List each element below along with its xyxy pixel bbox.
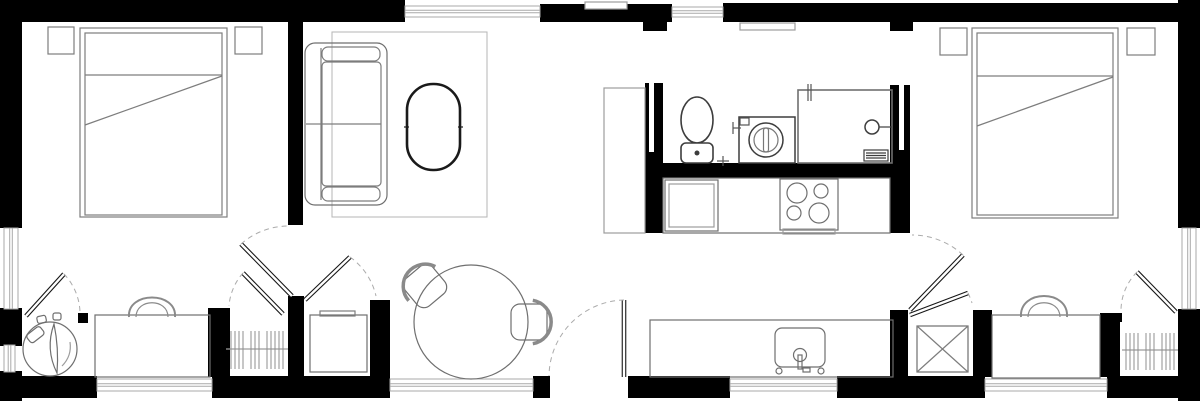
bottom-wall-2 [212,376,390,398]
pocket-door-left [649,78,654,152]
top-window-living [405,6,540,17]
closet-b2-jamb [1114,313,1122,322]
closet-b2-door-leaf-face [1137,272,1176,312]
bed-mattress [85,33,222,215]
bottom-window-desk1 [97,379,212,391]
windows [4,6,1196,391]
exterior-walls [0,0,1200,401]
burner [809,203,829,223]
bed-blanket-fold [85,76,222,125]
dining-furniture [400,261,552,379]
doors [26,226,1176,377]
left-window-upper [4,228,18,309]
top-window-bath [672,7,723,17]
left-window-small [4,345,15,372]
left-wall-mid [0,308,22,346]
bath-shelf [740,23,795,30]
washer-drum-inner [754,128,778,152]
bath-kitchen-wall [645,163,910,178]
right-window [1182,228,1196,309]
roof-vent [585,2,627,9]
closet-b2-door-swing [1121,272,1137,310]
bottom-wall-6 [1107,376,1200,398]
sink-counter [650,320,893,377]
shower-head [865,120,879,134]
tall-cabinet [604,88,645,233]
dining-chair-seat [511,304,547,340]
nook-furniture [23,313,77,376]
bed-frame [972,28,1118,218]
round-chair-knob [53,313,61,320]
floor-plan-canvas [0,0,1200,401]
desk2-post-left [973,310,992,377]
washer-drum-slot [764,128,769,152]
desk-right [992,315,1100,378]
sink-handle [776,368,782,374]
round-chair-armrest [26,326,46,344]
bedroom2-door-leaf-face [910,255,963,310]
bed-blanket-fold [977,77,1113,126]
nook-door-swing [64,274,80,312]
bedroom-1-furniture [48,27,262,217]
closet-left-post [208,308,230,377]
bath-stub-left [643,22,667,31]
burner [814,184,828,198]
sofa-arm [322,187,380,201]
closet-right-door-swing [350,257,376,296]
nook-jamb [78,313,88,323]
bedroom1-door-leaf-face [241,244,292,296]
bottom-wall-3 [533,376,550,398]
floor-plan-page [0,0,1200,401]
bathroom-fixtures [585,2,892,233]
desk-left [95,315,210,377]
sofa-arm [322,47,380,61]
nightstand [940,28,967,55]
nightstand [235,27,262,54]
right-wall-upper [1178,0,1200,228]
top-wall-left [0,0,405,22]
closet-right-post [370,300,390,377]
nightstand [48,27,74,54]
nightstand [1127,28,1155,55]
sink-handle [818,368,824,374]
bottom-window-dining [390,379,533,391]
bedroom1-living-wall [288,20,303,225]
bottom-wall-1 [0,376,97,398]
hall-post-left [288,296,304,377]
bottom-window-sink [730,379,837,391]
entry-counter [650,320,893,377]
bedroom-2-furniture [940,28,1155,218]
dining-chair-seat [400,261,451,312]
shower-stall [798,90,892,163]
nook-door-leaf-face [26,274,64,316]
fridge [665,180,718,231]
bath-stub-right [890,22,913,31]
bottom-wall-4 [628,376,730,398]
closet-left-door-swing [229,273,243,306]
fridge-inner [669,184,714,227]
desk2-post-right [1100,313,1120,377]
pocket-door-right [899,78,904,150]
bedroom2-door-swing [912,235,963,255]
dining-chair-back [533,300,551,343]
round-chair-knob [36,315,46,324]
interior-walls [78,20,1122,377]
living-room-furniture [305,32,487,217]
top-wall-right [723,3,1200,22]
coffee-table [407,84,460,170]
toilet-flush-button [695,151,700,156]
kitchen-counter [663,178,890,233]
bottom-wall-5 [837,376,985,398]
bed-mattress [977,33,1113,215]
closet-xbox-door-swing [968,293,972,303]
bed-frame [80,28,227,217]
kitchen-fixtures [663,178,890,234]
burner [787,183,807,203]
desks [95,296,1100,378]
left-wall-upper [0,0,22,228]
bedroom1-door-swing [241,226,289,244]
closet-right-door-leaf-face [305,257,350,300]
toilet-bowl [681,97,713,143]
faucet-spout [803,368,810,372]
round-chair-inner-arc [62,342,70,366]
bottom-window-desk2 [985,379,1107,391]
washer-box [739,117,795,163]
round-chair-cushion [50,324,57,373]
closet-appliance [310,315,367,372]
entry-door-swing [549,300,624,376]
burner [787,206,801,220]
washer-control [740,118,749,125]
